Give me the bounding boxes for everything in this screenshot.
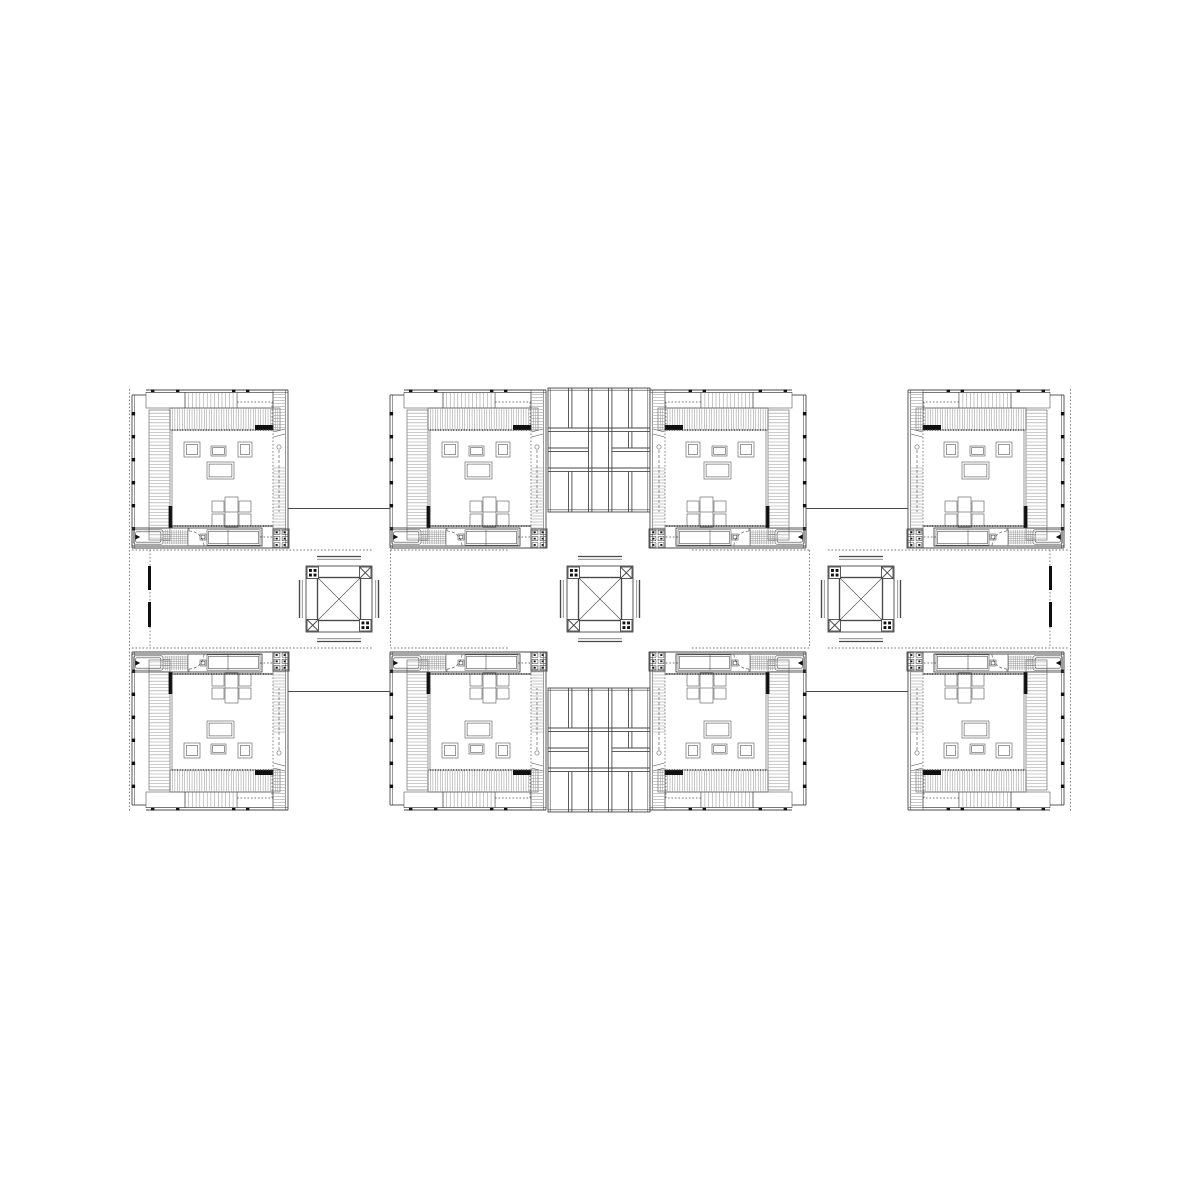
dining-chair <box>687 688 699 699</box>
dining-chair <box>497 514 509 526</box>
bathtub <box>392 530 422 544</box>
bathroom-floor-tiles <box>750 528 775 546</box>
bathtub <box>1033 656 1063 670</box>
apartment-unit-1 <box>132 390 290 549</box>
staircase <box>273 666 285 810</box>
armchair-left <box>184 442 200 457</box>
door-swing <box>189 654 204 672</box>
column-box <box>829 620 841 632</box>
apartment-unit-5 <box>132 652 290 811</box>
dining-chair <box>239 514 251 526</box>
dining-chair <box>945 688 957 699</box>
dining-chair <box>212 674 224 686</box>
staircase <box>653 666 665 810</box>
furniture <box>686 673 754 758</box>
bathtub <box>1033 530 1063 544</box>
dining-table <box>225 497 238 527</box>
service-shaft-box <box>907 529 923 548</box>
roof-terrace-band <box>404 770 531 808</box>
dining-chair <box>470 688 482 699</box>
drawing-canvas <box>0 0 1200 1200</box>
vent-shaft-box <box>829 567 841 579</box>
side-louver-strip <box>766 410 789 540</box>
side-louver-strip <box>407 660 430 790</box>
elevator-shaft <box>840 578 883 621</box>
dining-chair <box>714 501 726 512</box>
dining-table <box>700 497 713 527</box>
side-louver-strip <box>149 410 172 540</box>
dining-chair <box>497 674 509 686</box>
elevator-shaft <box>579 578 622 621</box>
armchair-left <box>442 442 458 457</box>
wc-fixture <box>200 534 206 540</box>
wardrobe <box>465 530 518 545</box>
dining-table <box>225 673 238 703</box>
door-swing <box>992 528 1007 546</box>
service-shaft-box <box>531 652 547 671</box>
courtyard-4 <box>828 550 1068 648</box>
column-box <box>360 567 372 579</box>
service-shaft-box <box>273 529 289 548</box>
side-louver-strip <box>1024 410 1047 540</box>
dining-chair <box>687 674 699 686</box>
dining-chair <box>945 674 957 686</box>
wc-fixture <box>458 534 464 540</box>
top-louver-strip <box>916 770 1026 792</box>
furniture <box>944 442 1012 527</box>
sofa <box>465 721 492 738</box>
courtyard-1 <box>132 550 372 648</box>
wardrobe <box>936 530 989 545</box>
apartment-unit-6 <box>390 652 548 811</box>
dining-chair <box>687 514 699 526</box>
side-louver-strip <box>766 660 789 790</box>
column-box <box>568 620 580 632</box>
coffee-table <box>970 446 985 456</box>
armchair-left <box>996 442 1012 457</box>
staircase <box>911 666 923 810</box>
top-louver-strip <box>916 408 1026 430</box>
armchair-right <box>238 743 252 758</box>
wardrobe <box>207 530 260 545</box>
wardrobe <box>678 655 731 670</box>
entry-bathroom-strip <box>665 528 806 546</box>
wc-fixture <box>458 660 464 666</box>
paving-grid-bottom <box>548 688 650 812</box>
bathroom-floor-tiles <box>750 654 775 672</box>
wardrobe <box>936 655 989 670</box>
bathroom-floor-tiles <box>163 654 188 672</box>
walkway-connectors <box>288 509 908 692</box>
furniture <box>442 673 510 758</box>
dining-chair <box>945 501 957 512</box>
elevator-shaft <box>318 578 361 621</box>
bathroom-floor-tiles <box>1008 654 1033 672</box>
furniture <box>184 442 252 527</box>
entry-bathroom-strip <box>390 654 531 672</box>
roof-terrace-band <box>923 392 1050 430</box>
dining-chair <box>470 674 482 686</box>
top-louver-strip <box>658 770 768 792</box>
entry-bathroom-strip <box>923 654 1064 672</box>
bathtub <box>134 530 164 544</box>
dining-table <box>958 497 971 527</box>
courtyard-3 <box>692 550 810 648</box>
armchair-left <box>738 743 754 758</box>
dining-chair <box>972 674 984 686</box>
courtyard-2 <box>391 550 509 648</box>
armchair-right <box>686 743 700 758</box>
door-swing <box>992 654 1007 672</box>
top-louver-strip <box>170 408 280 430</box>
coffee-table <box>211 744 226 754</box>
bathroom-floor-tiles <box>1008 528 1033 546</box>
dining-chair <box>239 688 251 699</box>
sofa <box>962 721 989 738</box>
armchair-left <box>996 743 1012 758</box>
bathroom-floor-tiles <box>421 654 446 672</box>
service-shaft-box <box>531 529 547 548</box>
staircase <box>273 390 285 534</box>
entry-bathroom-strip <box>665 654 806 672</box>
armchair-left <box>738 442 754 457</box>
roof-terrace-band <box>665 770 792 808</box>
vent-shaft-box <box>882 620 894 632</box>
dining-chair <box>470 514 482 526</box>
service-shaft-box <box>273 652 289 671</box>
dining-chair <box>972 514 984 526</box>
roof-terrace-band <box>404 392 531 430</box>
vent-shaft-box <box>621 620 633 632</box>
dining-chair <box>972 688 984 699</box>
bathtub <box>134 656 164 670</box>
elevator-core-2 <box>561 557 640 642</box>
entry-bathroom-strip <box>923 528 1064 546</box>
dining-chair <box>497 501 509 512</box>
vent-shaft-box <box>307 567 319 579</box>
coffee-table <box>469 446 484 456</box>
entry-bathroom-strip <box>132 528 273 546</box>
dining-chair <box>212 514 224 526</box>
dining-chair <box>687 501 699 512</box>
column-box <box>307 620 319 632</box>
service-shaft-box <box>907 652 923 671</box>
dining-chair <box>972 501 984 512</box>
apartment-unit-4 <box>907 390 1065 549</box>
dining-chair <box>714 514 726 526</box>
dining-table <box>958 673 971 703</box>
roof-terrace-band <box>923 770 1050 808</box>
door-swing <box>447 654 462 672</box>
dining-chair <box>212 501 224 512</box>
bathroom-floor-tiles <box>421 528 446 546</box>
top-louver-strip <box>658 408 768 430</box>
sofa <box>704 721 731 738</box>
dining-chair <box>239 674 251 686</box>
furniture <box>686 442 754 527</box>
side-louver-strip <box>149 660 172 790</box>
wc-fixture <box>200 660 206 666</box>
staircase <box>531 666 543 810</box>
armchair-left <box>184 743 200 758</box>
service-shaft-box <box>649 652 665 671</box>
bathroom-floor-tiles <box>163 528 188 546</box>
coffee-table <box>712 446 727 456</box>
bathtub <box>775 656 805 670</box>
armchair-right <box>944 743 958 758</box>
wc-fixture <box>732 660 738 666</box>
bathtub <box>775 530 805 544</box>
bathtub <box>392 656 422 670</box>
dining-chair <box>470 501 482 512</box>
vent-shaft-box <box>360 620 372 632</box>
apartment-unit-3 <box>649 390 807 549</box>
door-swing <box>189 528 204 546</box>
door-swing <box>734 654 749 672</box>
apartment-unit-8 <box>907 652 1065 811</box>
door-swing <box>447 528 462 546</box>
sofa <box>704 462 731 479</box>
entry-bathroom-strip <box>132 654 273 672</box>
armchair-right <box>496 442 510 457</box>
wardrobe <box>207 655 260 670</box>
dining-chair <box>239 501 251 512</box>
roof-terrace-band <box>146 770 273 808</box>
balcony-walkway <box>148 550 151 648</box>
dining-table <box>483 497 496 527</box>
sofa <box>962 462 989 479</box>
apartment-unit-7 <box>649 652 807 811</box>
top-louver-strip <box>428 770 538 792</box>
wardrobe <box>465 655 518 670</box>
coffee-table <box>970 744 985 754</box>
coffee-table <box>469 744 484 754</box>
entry-bathroom-strip <box>390 528 531 546</box>
sofa <box>465 462 492 479</box>
dining-table <box>483 673 496 703</box>
staircase <box>911 390 923 534</box>
wc-fixture <box>990 534 996 540</box>
coffee-table <box>712 744 727 754</box>
roof-terrace-band <box>665 392 792 430</box>
paving-grid-top <box>548 388 650 512</box>
roof-terrace-band <box>146 392 273 430</box>
staircase <box>531 390 543 534</box>
top-louver-strip <box>170 770 280 792</box>
door-swing <box>734 528 749 546</box>
furniture <box>184 673 252 758</box>
wc-fixture <box>732 534 738 540</box>
coffee-table <box>211 446 226 456</box>
wardrobe <box>678 530 731 545</box>
top-louver-strip <box>428 408 538 430</box>
furniture <box>442 442 510 527</box>
sofa <box>207 462 234 479</box>
staircase <box>653 390 665 534</box>
column-box <box>621 567 633 579</box>
dining-chair <box>714 688 726 699</box>
armchair-right <box>496 743 510 758</box>
sofa <box>207 721 234 738</box>
balcony-walkway <box>1049 550 1052 648</box>
vent-shaft-box <box>568 567 580 579</box>
dining-chair <box>497 688 509 699</box>
dining-chair <box>714 674 726 686</box>
elevator-core-1 <box>300 557 379 642</box>
armchair-left <box>442 743 458 758</box>
furniture <box>944 673 1012 758</box>
column-box <box>882 567 894 579</box>
wc-fixture <box>990 660 996 666</box>
side-louver-strip <box>407 410 430 540</box>
floor-plan-drawing <box>0 0 1200 1200</box>
armchair-right <box>238 442 252 457</box>
service-shaft-box <box>649 529 665 548</box>
site-boundary <box>130 389 1071 811</box>
armchair-right <box>686 442 700 457</box>
elevator-core-3 <box>822 557 901 642</box>
dining-chair <box>212 688 224 699</box>
dining-chair <box>945 514 957 526</box>
apartment-unit-2 <box>390 390 548 549</box>
side-louver-strip <box>1024 660 1047 790</box>
dining-table <box>700 673 713 703</box>
armchair-right <box>944 442 958 457</box>
